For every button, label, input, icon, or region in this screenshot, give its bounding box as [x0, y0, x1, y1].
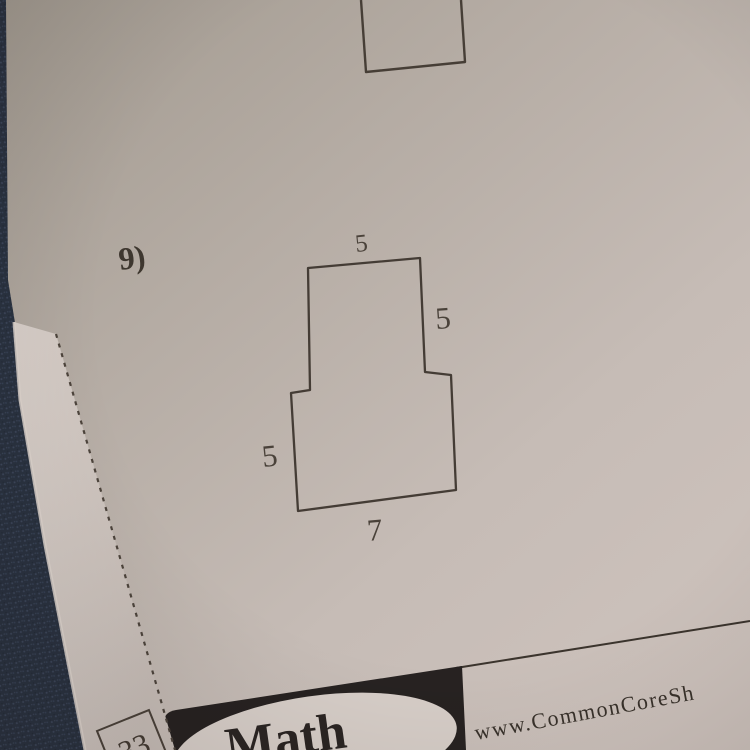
shape-label-bottom: 7: [366, 512, 384, 548]
worksheet-photo-canvas: 9) 5 5 5 7 www.CommonCoreSh Math 33: [0, 0, 750, 750]
photo-of-worksheet: 9) 5 5 5 7 www.CommonCoreSh Math 33: [0, 0, 750, 750]
shape-label-right: 5: [434, 300, 452, 336]
problem-number: 9): [116, 238, 147, 277]
